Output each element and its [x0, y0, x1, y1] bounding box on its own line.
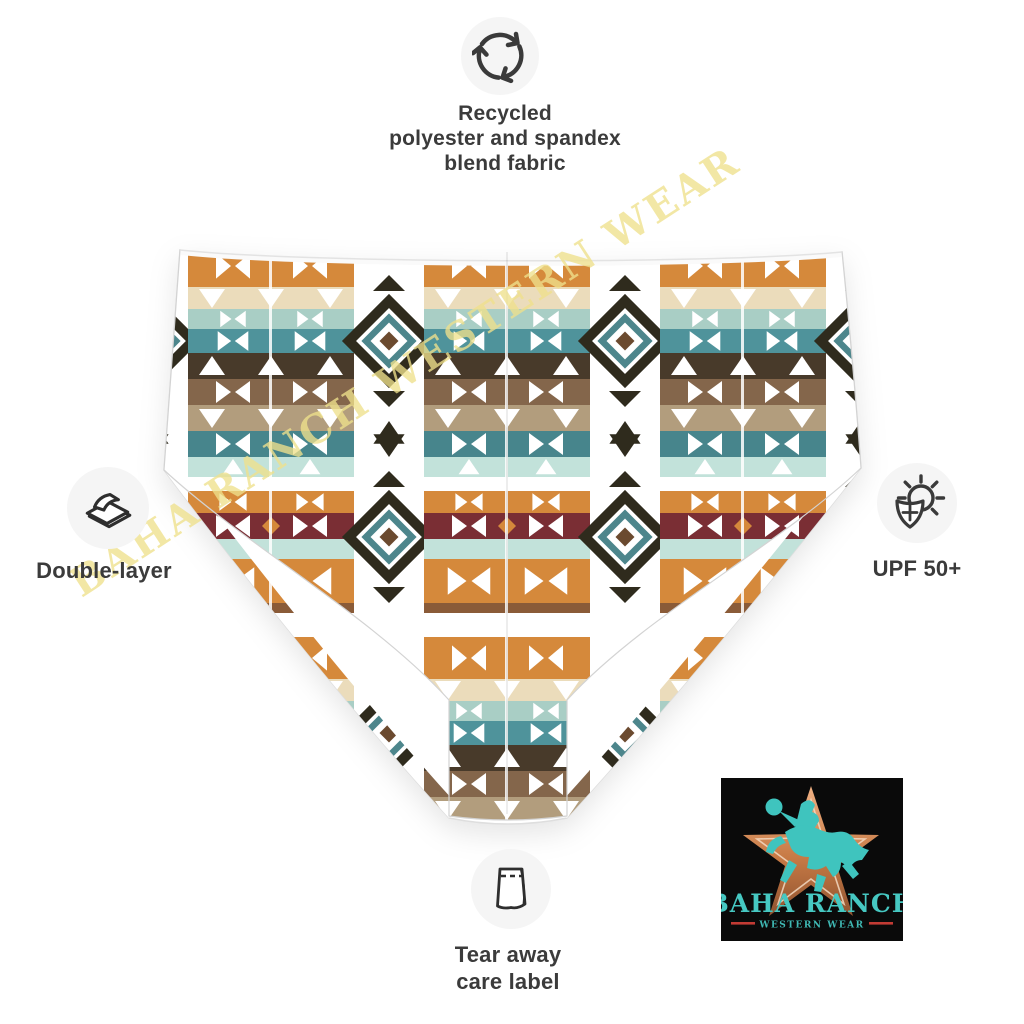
baha-ranch-logo: BAHA RANCH WESTERN WEAR [721, 778, 903, 941]
sun-shield-icon [888, 474, 946, 532]
recycle-icon [472, 28, 528, 84]
logo-accent-line-left [731, 922, 755, 925]
recycle-icon-circle [461, 17, 539, 95]
layers-icon [79, 479, 137, 537]
product-feature-diagram: BAHA RANCH WESTERN WEAR Recycled polyest… [0, 0, 1024, 1024]
tear-away-label: Tear away care label [408, 941, 608, 995]
care-label-icon-circle [471, 849, 551, 929]
care-label-icon [483, 861, 539, 917]
logo-subtitle: WESTERN WEAR [758, 921, 864, 931]
layers-icon-circle [67, 467, 149, 549]
upf-label: UPF 50+ [817, 556, 1017, 582]
bikini-bottom-image [140, 230, 880, 855]
logo-title: BAHA RANCH [721, 889, 903, 918]
sun-shield-icon-circle [877, 463, 957, 543]
double-layer-label: Double-layer [3, 558, 205, 584]
garment-front-panel [164, 250, 861, 820]
recycled-fabric-label: Recycled polyester and spandex blend fab… [355, 101, 655, 176]
logo-accent-line-right [869, 922, 893, 925]
